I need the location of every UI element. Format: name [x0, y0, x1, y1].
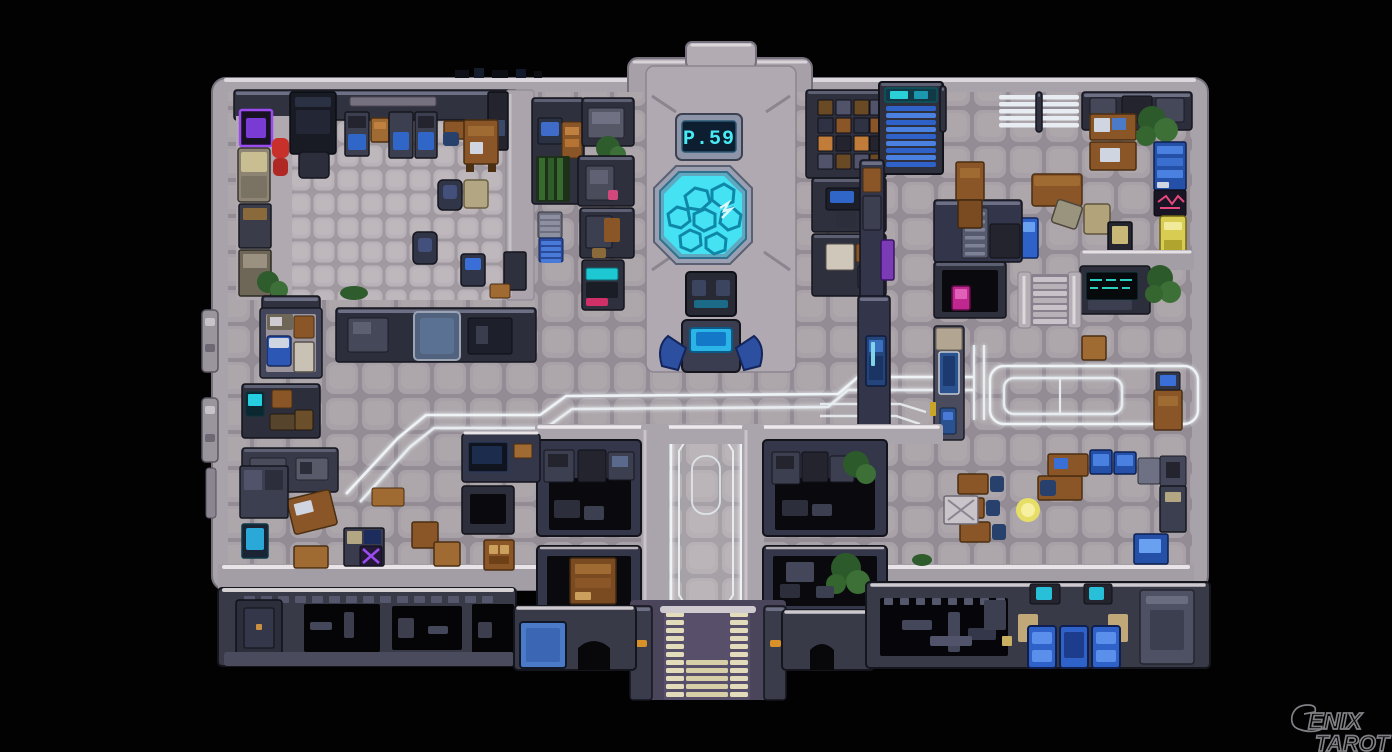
svg-text:P.59: P.59 — [683, 128, 735, 151]
svg-text:TAROT: TAROT — [1315, 731, 1391, 752]
